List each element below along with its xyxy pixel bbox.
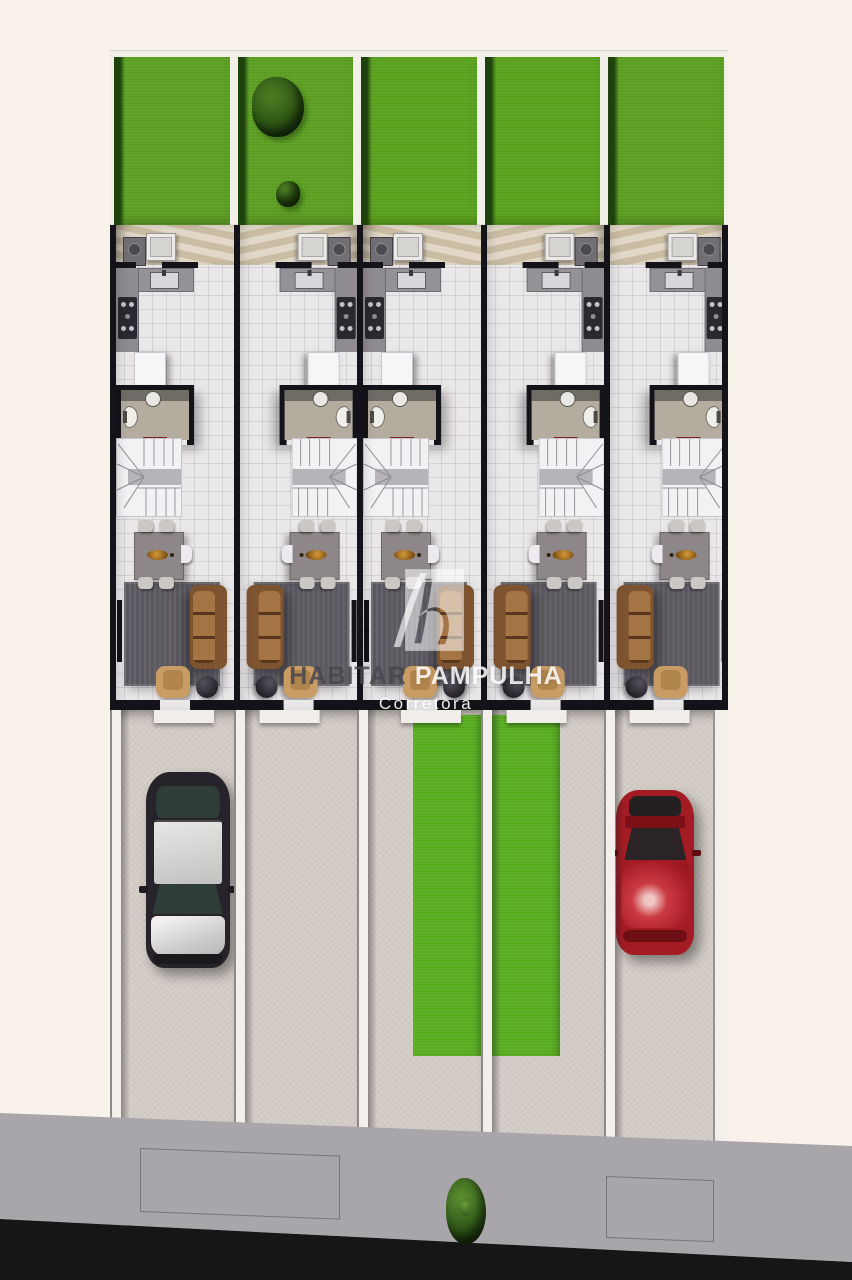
shrub bbox=[276, 181, 300, 207]
dining-chair bbox=[299, 577, 314, 589]
dining-chair bbox=[181, 545, 192, 563]
bathroom-sink bbox=[312, 391, 328, 407]
render-canvas: HABITAR PAMPULHA Corretora bbox=[0, 0, 852, 1280]
car-bumper bbox=[623, 930, 687, 942]
car-hood bbox=[151, 916, 225, 956]
parked-car-red bbox=[616, 790, 694, 955]
bathroom bbox=[526, 385, 604, 445]
sofa bbox=[246, 585, 283, 669]
refrigerator bbox=[381, 352, 413, 388]
bathroom bbox=[650, 385, 728, 445]
dining-chair bbox=[567, 577, 582, 589]
stove bbox=[336, 297, 355, 339]
entry-step bbox=[259, 710, 319, 723]
car-roof bbox=[154, 820, 222, 884]
table-centerpiece bbox=[552, 550, 573, 560]
tree bbox=[252, 77, 304, 137]
armchair bbox=[283, 666, 317, 698]
ground bbox=[0, 1100, 852, 1280]
parked-car-dark bbox=[146, 772, 230, 968]
table-centerpiece bbox=[147, 550, 168, 560]
toilet bbox=[123, 406, 138, 428]
floor-plan bbox=[481, 225, 605, 710]
entry-step bbox=[401, 710, 461, 723]
dining-chair bbox=[546, 577, 561, 589]
floor-plan-content bbox=[363, 225, 481, 710]
bathroom bbox=[363, 385, 441, 445]
toilet bbox=[582, 406, 597, 428]
car-rear-window bbox=[156, 786, 220, 818]
floor-plan-content bbox=[116, 225, 234, 710]
dining-chair bbox=[428, 545, 439, 563]
dining-chair bbox=[691, 520, 706, 532]
dining-chair bbox=[567, 520, 582, 532]
dining-chair bbox=[138, 520, 153, 532]
floor-plan-content bbox=[487, 225, 605, 710]
staircase bbox=[538, 438, 604, 517]
backyard bbox=[361, 57, 477, 225]
dining-chair bbox=[385, 520, 400, 532]
toilet bbox=[706, 406, 721, 428]
tv-panel bbox=[351, 600, 356, 662]
dining-chair bbox=[406, 577, 421, 589]
front-door-opening bbox=[407, 700, 437, 710]
dining-chair bbox=[320, 520, 335, 532]
kitchen-sink bbox=[150, 272, 179, 289]
tv-panel bbox=[598, 600, 603, 662]
car-mirror bbox=[692, 850, 701, 856]
driveway-apron bbox=[606, 1176, 714, 1242]
side-table-pouf bbox=[196, 676, 218, 698]
armchair bbox=[156, 666, 190, 698]
car-windshield bbox=[153, 884, 223, 914]
side-table-pouf bbox=[255, 676, 277, 698]
driveway bbox=[357, 710, 481, 1160]
dining-chair bbox=[406, 520, 421, 532]
side-table-pouf bbox=[626, 676, 648, 698]
dining-chair bbox=[159, 577, 174, 589]
driveway bbox=[110, 710, 234, 1160]
floor-plan bbox=[234, 225, 358, 710]
washing-machine bbox=[146, 233, 176, 261]
kitchen-sink bbox=[397, 272, 426, 289]
bathroom bbox=[279, 385, 357, 445]
side-table-pouf bbox=[502, 676, 524, 698]
washing-machine bbox=[668, 233, 698, 261]
building-block bbox=[110, 50, 728, 1160]
townhouse-unit-1 bbox=[110, 57, 234, 1160]
refrigerator bbox=[307, 352, 339, 388]
bathroom-sink bbox=[559, 391, 575, 407]
right-party-wall bbox=[722, 225, 728, 710]
entry-step bbox=[154, 710, 214, 723]
sofa bbox=[437, 585, 474, 669]
bathroom-sink bbox=[145, 391, 161, 407]
dining-chair bbox=[159, 520, 174, 532]
toilet bbox=[335, 406, 350, 428]
dining-chair bbox=[138, 577, 153, 589]
front-door-opening bbox=[530, 700, 560, 710]
dining-chair bbox=[385, 577, 400, 589]
backyard bbox=[485, 57, 601, 225]
units-row bbox=[110, 57, 728, 1160]
car-windshield bbox=[624, 828, 686, 860]
dining-chair bbox=[670, 520, 685, 532]
driveway-grass-strip bbox=[492, 715, 560, 1056]
bathroom bbox=[116, 385, 194, 445]
side-table-pouf bbox=[443, 676, 465, 698]
stove bbox=[118, 297, 137, 339]
dining-chair bbox=[691, 577, 706, 589]
stove bbox=[583, 297, 602, 339]
table-centerpiece bbox=[305, 550, 326, 560]
car-mirror bbox=[139, 886, 148, 893]
refrigerator bbox=[554, 352, 586, 388]
car-roof bbox=[625, 816, 685, 828]
sofa bbox=[190, 585, 227, 669]
kitchen-sink bbox=[665, 272, 694, 289]
backyard bbox=[238, 57, 354, 225]
staircase bbox=[116, 438, 182, 517]
floor-plan-content bbox=[240, 225, 358, 710]
washing-machine bbox=[297, 233, 327, 261]
front-door-opening bbox=[283, 700, 313, 710]
staircase bbox=[363, 438, 429, 517]
sofa bbox=[493, 585, 530, 669]
front-door-opening bbox=[654, 700, 684, 710]
driveway-apron bbox=[140, 1148, 340, 1220]
backyard bbox=[114, 57, 230, 225]
dining-chair bbox=[320, 577, 335, 589]
tv-panel bbox=[364, 600, 369, 662]
driveway-grass-strip bbox=[413, 715, 481, 1056]
washing-machine bbox=[393, 233, 423, 261]
staircase bbox=[291, 438, 357, 517]
armchair bbox=[403, 666, 437, 698]
tv-panel bbox=[117, 600, 122, 662]
dining-chair bbox=[299, 520, 314, 532]
entry-step bbox=[506, 710, 566, 723]
dining-chair bbox=[670, 577, 685, 589]
dining-chair bbox=[546, 520, 561, 532]
entry-step bbox=[630, 710, 690, 723]
dining-chair bbox=[281, 545, 292, 563]
backyard bbox=[608, 57, 724, 225]
townhouse-unit-2 bbox=[234, 57, 358, 1160]
floor-plan-content bbox=[610, 225, 728, 710]
car-rear-window bbox=[629, 796, 681, 816]
driveway bbox=[234, 710, 358, 1160]
stove bbox=[365, 297, 384, 339]
floor-plan bbox=[110, 225, 234, 710]
washing-machine bbox=[544, 233, 574, 261]
kitchen-sink bbox=[541, 272, 570, 289]
refrigerator bbox=[134, 352, 166, 388]
bathroom-sink bbox=[683, 391, 699, 407]
townhouse-unit-4 bbox=[481, 57, 605, 1160]
townhouse-unit-5 bbox=[604, 57, 728, 1160]
sofa bbox=[617, 585, 654, 669]
kitchen-sink bbox=[294, 272, 323, 289]
floor-plan bbox=[604, 225, 728, 710]
dining-chair bbox=[528, 545, 539, 563]
staircase bbox=[662, 438, 728, 517]
armchair bbox=[530, 666, 564, 698]
dining-chair bbox=[652, 545, 663, 563]
armchair bbox=[654, 666, 688, 698]
floor-plan bbox=[357, 225, 481, 710]
bathroom-sink bbox=[392, 391, 408, 407]
refrigerator bbox=[678, 352, 710, 388]
front-door-opening bbox=[160, 700, 190, 710]
townhouse-unit-3 bbox=[357, 57, 481, 1160]
toilet bbox=[370, 406, 385, 428]
right-driveway-divider bbox=[713, 710, 728, 1160]
car-bumper bbox=[153, 954, 223, 964]
car-mirror bbox=[609, 850, 618, 856]
driveway bbox=[604, 710, 728, 1160]
driveway bbox=[481, 710, 605, 1160]
car-hood bbox=[621, 862, 689, 928]
street-tree bbox=[446, 1178, 486, 1244]
